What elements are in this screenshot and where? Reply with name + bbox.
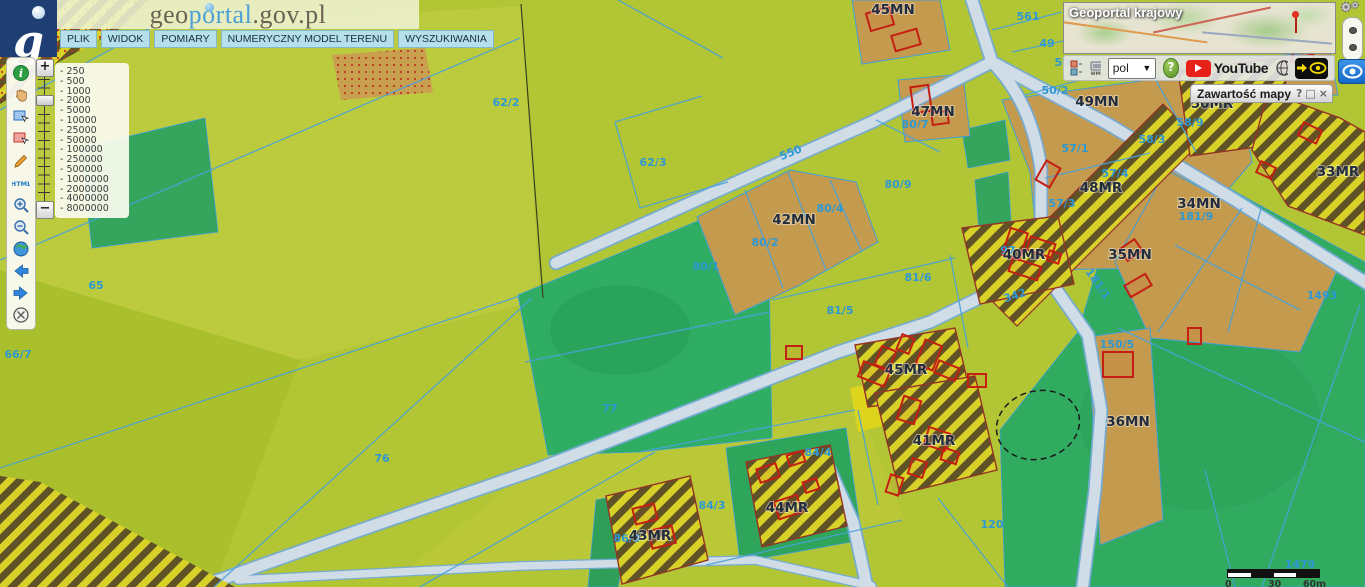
parcel-number: 80/2	[752, 236, 779, 249]
html-report-icon: HTML	[12, 174, 30, 192]
building-outline	[1047, 250, 1062, 263]
zone-label-42MN: 42MN	[772, 212, 816, 228]
logo-ball-icon	[32, 6, 45, 19]
parcel-number: 62/3	[640, 156, 667, 169]
building-outline	[1188, 328, 1201, 344]
zone-label-45MR: 45MR	[885, 362, 928, 378]
building-outline	[1103, 352, 1133, 377]
parcel-number: 66/7	[5, 348, 32, 361]
zone-label-33MR: 33MR	[1317, 164, 1360, 180]
parcel-number: 58/3	[1139, 133, 1166, 146]
brand-band: geoportal.gov.pl	[57, 0, 419, 29]
zoom-slider-handle[interactable]	[36, 95, 54, 106]
zone-label-48MR: 48MR	[1080, 180, 1123, 196]
handle-dot-icon	[1349, 27, 1357, 34]
parcel-number: 561	[1017, 10, 1040, 23]
zoom-out-button[interactable]	[10, 216, 32, 237]
handle-dot-icon	[1349, 44, 1357, 51]
parcel-number: 81/5	[827, 304, 854, 317]
legend-icon[interactable]	[1070, 60, 1082, 76]
parcel-number: 120	[981, 518, 1004, 531]
overview-marker-line	[1295, 17, 1297, 33]
scale-bar-label: 30	[1268, 579, 1281, 587]
parcel-number: 58/9	[1177, 116, 1204, 129]
parcel-number: 80/1	[693, 260, 720, 273]
panel-handle[interactable]	[1342, 17, 1363, 61]
parcel-number: 84/3	[699, 499, 726, 512]
parcel-number: 76	[374, 452, 390, 465]
geoportal-app: 5614950/150/280/780/980/480/280/181/681/…	[0, 0, 1365, 587]
clear-button[interactable]	[10, 304, 32, 325]
panel-maximize-button[interactable]: □	[1305, 88, 1315, 99]
pan-icon	[12, 86, 30, 104]
quick-view-eye-icon	[1309, 62, 1327, 74]
select-rectangle-icon	[12, 108, 30, 126]
building-outline	[968, 374, 986, 387]
building-outline	[786, 346, 802, 359]
overview-marker-icon	[1292, 11, 1299, 18]
menu-bar: PLIKWIDOKPOMIARYNUMERYCZNY MODEL TERENUW…	[60, 30, 494, 48]
parcel-number: 57/4	[1102, 167, 1129, 180]
info-button[interactable]: i	[10, 62, 32, 83]
previous-view-button[interactable]	[10, 260, 32, 281]
map-toolbar: WMS pol▼ ? YouTube	[1063, 55, 1335, 81]
parcel-number: 62/2	[493, 96, 520, 109]
deselect-rectangle-button[interactable]	[10, 128, 32, 149]
overview-title: Geoportal krajowy	[1069, 5, 1182, 20]
overview-map[interactable]: Geoportal krajowy	[1063, 2, 1336, 54]
zoom-in-button[interactable]: +	[36, 59, 54, 77]
parcel-number: 49	[1039, 37, 1054, 50]
svg-text:WMS: WMS	[1091, 71, 1101, 76]
svg-text:HTML: HTML	[12, 180, 30, 188]
parcel-number: 65	[88, 279, 103, 292]
zone-label-35MN: 35MN	[1108, 247, 1152, 263]
zoom-in-icon	[12, 196, 30, 214]
language-select[interactable]: pol▼	[1108, 58, 1157, 79]
gears-icon	[1338, 0, 1362, 14]
zone-label-41MR: 41MR	[913, 433, 956, 449]
draw-icon	[12, 152, 30, 170]
zone-label-47MN: 47MN	[911, 104, 955, 120]
quick-view-toggle[interactable]	[1295, 58, 1328, 79]
clear-icon	[12, 306, 30, 324]
scale-bar: 0 30 60m	[1227, 569, 1320, 587]
left-toolbar: iHTML	[6, 57, 36, 330]
help-button[interactable]: ?	[1163, 58, 1178, 78]
panel-help-button[interactable]: ?	[1296, 88, 1302, 99]
show-map-content-button[interactable]	[1338, 59, 1365, 84]
panel-title: Zawartość mapy	[1197, 87, 1293, 101]
full-extent-icon	[12, 240, 30, 258]
deselect-rectangle-icon	[12, 130, 30, 148]
scale-bar-label: 0	[1225, 579, 1232, 587]
map-content-panel-header[interactable]: Zawartość mapy ? □ ×	[1190, 84, 1333, 103]
parcel-number: 150/5	[1100, 338, 1135, 351]
zoom-out-button[interactable]: −	[36, 201, 54, 219]
geoportal-logo[interactable]: g	[0, 0, 57, 57]
quick-view-arrow-icon	[1296, 62, 1308, 74]
previous-view-icon	[12, 262, 30, 280]
panel-close-button[interactable]: ×	[1319, 88, 1328, 99]
select-rectangle-button[interactable]	[10, 106, 32, 127]
zone-label-43MR: 43MR	[629, 528, 672, 544]
next-view-icon	[12, 284, 30, 302]
menu-item-wyszukiwania[interactable]: WYSZUKIWANIA	[398, 30, 494, 48]
menu-item-pomiary[interactable]: POMIARY	[154, 30, 216, 48]
scale-tooltip: - 250- 500- 1000- 2000- 5000- 10000- 250…	[55, 63, 129, 218]
scale-option[interactable]: - 8000000	[60, 204, 124, 214]
full-extent-button[interactable]	[10, 238, 32, 259]
parcel-number: 81/6	[905, 271, 932, 284]
parcel-number: 50/2	[1042, 84, 1069, 97]
parcel-number: 80/4	[817, 202, 844, 215]
wms-icon[interactable]: WMS	[1089, 60, 1101, 76]
map-canvas[interactable]: 5614950/150/280/780/980/480/280/181/681/…	[0, 0, 1365, 587]
zone-label-44MR: 44MR	[766, 500, 809, 516]
html-report-button[interactable]: HTML	[10, 172, 32, 193]
brand-globe-icon	[205, 3, 214, 12]
zone-label-36MN: 36MN	[1106, 414, 1150, 430]
parcel-number: 57/3	[1049, 197, 1076, 210]
next-view-button[interactable]	[10, 282, 32, 303]
zone-label-34MN: 34MN	[1177, 196, 1221, 212]
site-title: geoportal.gov.pl	[150, 2, 327, 28]
parcel-number: 77	[602, 402, 617, 415]
menu-item-widok[interactable]: WIDOK	[101, 30, 151, 48]
parcel-number: 57/1	[1062, 142, 1089, 155]
draw-button[interactable]	[10, 150, 32, 171]
chevron-down-icon: ▼	[1142, 63, 1151, 73]
youtube-button[interactable]: YouTube	[1186, 60, 1268, 77]
zoom-out-icon	[12, 218, 30, 236]
svg-text:i: i	[19, 67, 23, 80]
zone-label-40MR: 40MR	[1003, 247, 1046, 263]
menu-item-numeryczny-model-terenu[interactable]: NUMERYCZNY MODEL TERENU	[221, 30, 394, 48]
eye-icon	[1342, 64, 1363, 79]
overview-road	[1202, 31, 1332, 44]
globe-grid-icon[interactable]	[1275, 59, 1288, 77]
pan-button[interactable]	[10, 84, 32, 105]
youtube-play-icon	[1186, 60, 1211, 77]
parcel-number: 80/9	[885, 178, 912, 191]
zone-label-45MN: 45MN	[871, 2, 915, 18]
zone-label-49MN: 49MN	[1075, 94, 1119, 110]
zoom-in-button[interactable]	[10, 194, 32, 215]
menu-item-plik[interactable]: PLIK	[60, 30, 97, 48]
scale-bar-label: 60m	[1303, 579, 1326, 587]
parcel-number: 84/4	[805, 446, 832, 459]
info-icon: i	[12, 64, 30, 82]
parcel-number: 1493	[1307, 289, 1338, 302]
